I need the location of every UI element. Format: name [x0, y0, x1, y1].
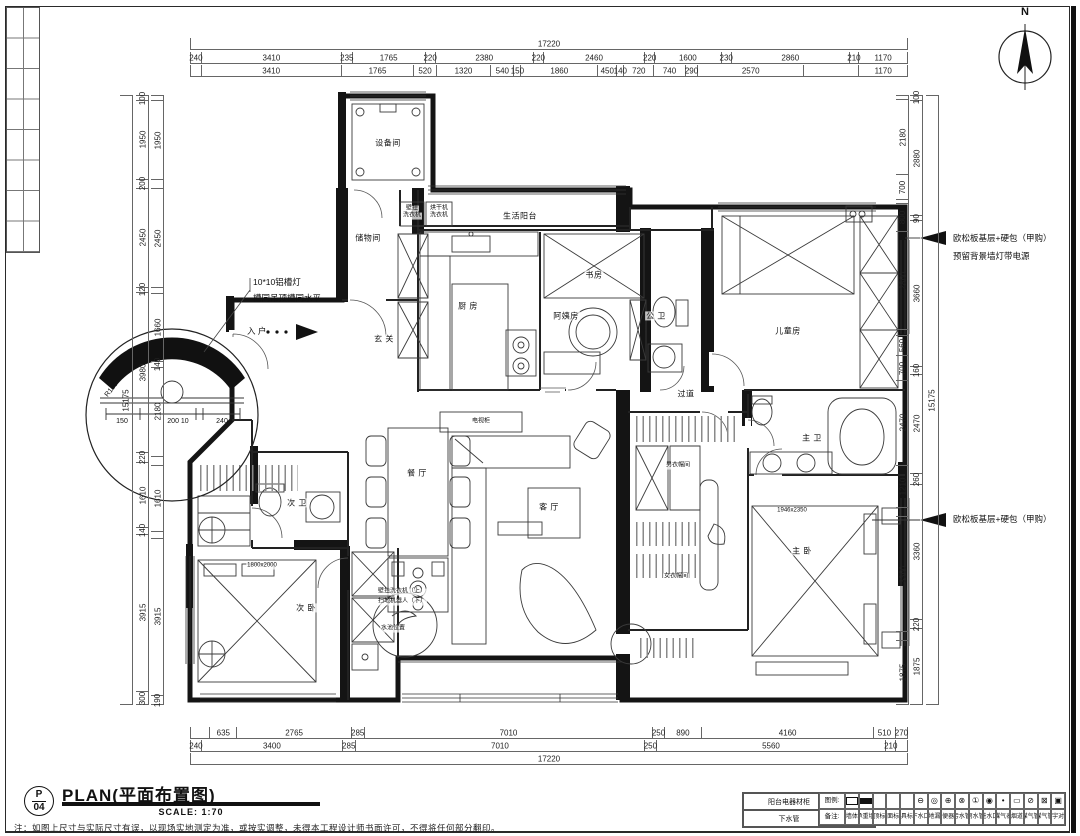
legend-symbol-icon: ①	[969, 793, 983, 809]
legend-symbol-icon: ▭	[1010, 793, 1024, 809]
legend-item: ▭ 烟道	[1010, 793, 1024, 825]
annotation-label: 1946x2350	[776, 508, 808, 515]
legend-item: ⊖ 下水口	[914, 793, 928, 825]
room-label: 设备间	[374, 138, 402, 147]
room-label: 书房	[585, 270, 604, 279]
annotation-label: 入 户	[246, 327, 267, 337]
legend-item: • 煤气表	[996, 793, 1010, 825]
legend-row1-header: 图例:	[819, 793, 845, 809]
legend-symbol-icon	[859, 793, 873, 809]
legend-symbol-icon	[873, 793, 887, 809]
legend-item-label: 地面标高	[886, 809, 900, 825]
room-label: 儿童房	[774, 326, 802, 335]
annotation-label: 壁挂洗衣机（上）	[377, 589, 427, 596]
drawing-sheet: 17220 2403410235176522023802202460220160…	[0, 0, 1080, 836]
legend-item-label: 承重墙	[859, 809, 873, 825]
legend-symbol-icon	[886, 793, 900, 809]
annotation-label: 150	[115, 418, 129, 426]
legend-symbol-icon: ◉	[983, 793, 997, 809]
scale-label: SCALE: 1:70	[62, 807, 320, 817]
room-label: 女衣帽间	[663, 574, 689, 581]
north-label: N	[1013, 6, 1037, 18]
legend-item-label: 烟道	[1010, 809, 1024, 825]
annotation-label: 240	[215, 418, 229, 426]
room-label: 主 卧	[791, 546, 813, 555]
legend-symbol-icon	[845, 793, 859, 809]
sheet-code-top: P	[32, 790, 47, 802]
annotation-label: 1800x2000	[246, 563, 278, 570]
annotation-label: 槽同吊顶槽同水平	[252, 294, 322, 304]
annotation-label: 烘干机	[429, 206, 449, 213]
room-label: 男衣帽间	[665, 463, 691, 470]
room-label: 玄 关	[373, 334, 395, 343]
legend-symbol-icon: ◎	[928, 793, 942, 809]
legend-item: ⊘ 煤气管	[1024, 793, 1038, 825]
legend-symbol-icon: •	[996, 793, 1010, 809]
legend-item: ◎ 地漏	[928, 793, 942, 825]
legend-item-label: 家具标高	[900, 809, 914, 825]
legend-item-label: 煤气管	[1024, 809, 1038, 825]
annotation-label: 水池位置	[380, 626, 406, 633]
legend-item: ① 雨水管	[969, 793, 983, 825]
legend-item: ◉ 进水口	[983, 793, 997, 825]
legend-symbol-icon: ▣	[1051, 793, 1065, 809]
sheet-number-bubble: P 04	[24, 786, 54, 816]
legend-item-label: 进水口	[983, 809, 997, 825]
room-label: 储物间	[354, 233, 382, 242]
annotation-label: 200 10	[166, 418, 189, 426]
legend-item-label: 地漏	[928, 809, 942, 825]
legend-symbol-icon	[900, 793, 914, 809]
legend-symbol-icon: ⊗	[955, 793, 969, 809]
legend-item: ⊗ 污水管	[955, 793, 969, 825]
legend-symbol-icon: ⊠	[1038, 793, 1052, 809]
annotation-label: 洗衣机	[402, 213, 422, 220]
sheet-border	[5, 6, 1070, 833]
room-label: 餐 厅	[406, 468, 428, 477]
legend-item: ⊕ 座便器位	[941, 793, 955, 825]
annotation-label: 欧松板基层+硬包（甲购）	[952, 234, 1052, 244]
annotation-label: 预留背景墙灯带电源	[952, 252, 1031, 262]
legend-symbol-icon: ⊕	[941, 793, 955, 809]
legend-item-label: 楼宇对讲	[1051, 809, 1065, 825]
room-label: 阿姨房	[552, 311, 580, 320]
annotation-label: 壁挂	[405, 206, 419, 213]
legend-symbol-icon: ⊘	[1024, 793, 1038, 809]
room-label: 主 卫	[801, 433, 823, 442]
room-label: 电视柜	[471, 419, 491, 426]
annotation-label: 扫地机器人（下）	[377, 599, 427, 606]
margin-schedule-strip	[6, 7, 40, 253]
legend-item: ⊠ 煤气管	[1038, 793, 1052, 825]
room-label: 次 卫	[286, 498, 308, 507]
legend-item-label: 座便器位	[941, 809, 955, 825]
annotation-label: 洗衣机	[429, 213, 449, 220]
legend-symbol-icon: ⊖	[914, 793, 928, 809]
room-label: 厨 房	[457, 301, 479, 310]
annotation-label: 10*10铝槽灯	[252, 278, 302, 288]
legend-item-label: 污水管	[955, 809, 969, 825]
legend-items: 墙体 承重墙 吊顶标高 地面标高 家具标高 ⊖ 下水口 ◎ 地漏 ⊕	[845, 793, 1065, 825]
sheet-right-edge	[1071, 6, 1076, 833]
legend-item: 吊顶标高	[873, 793, 887, 825]
legend-item: 家具标高	[900, 793, 914, 825]
sheet-note: 注：如图上尺寸与实际尺寸有误，以现场实地测定为准，或按实调整，未得本工程设计师书…	[14, 822, 500, 834]
legend-row2-header: 备注:	[819, 809, 845, 825]
room-label: 客 厅	[538, 502, 560, 511]
legend-item: 墙体	[845, 793, 859, 825]
legend-header: 图例: 备注:	[819, 793, 845, 825]
room-label: 公 卫	[645, 311, 667, 320]
legend-item: 地面标高	[886, 793, 900, 825]
title-underline	[62, 802, 320, 806]
legend-item-label: 雨水管	[969, 809, 983, 825]
sheet-code-bottom: 04	[33, 802, 44, 813]
annotation-label: 欧松板基层+硬包（甲购）	[952, 515, 1052, 525]
legend-item: 承重墙	[859, 793, 873, 825]
legend-item-label: 煤气管	[1038, 809, 1052, 825]
legend-item-label: 墙体	[845, 809, 859, 825]
room-label: 次 卧	[295, 603, 317, 612]
legend-item-label: 下水口	[914, 809, 928, 825]
room-label: 过道	[677, 389, 696, 398]
legend-table: 图例: 备注: 墙体 承重墙 吊顶标高 地面标高 家具标高 ⊖ 下水口	[818, 792, 1066, 826]
legend-item-label: 煤气表	[996, 809, 1010, 825]
legend-item: ▣ 楼宇对讲	[1051, 793, 1065, 825]
room-label: 生活阳台	[502, 211, 538, 220]
legend-item-label: 吊顶标高	[873, 809, 887, 825]
